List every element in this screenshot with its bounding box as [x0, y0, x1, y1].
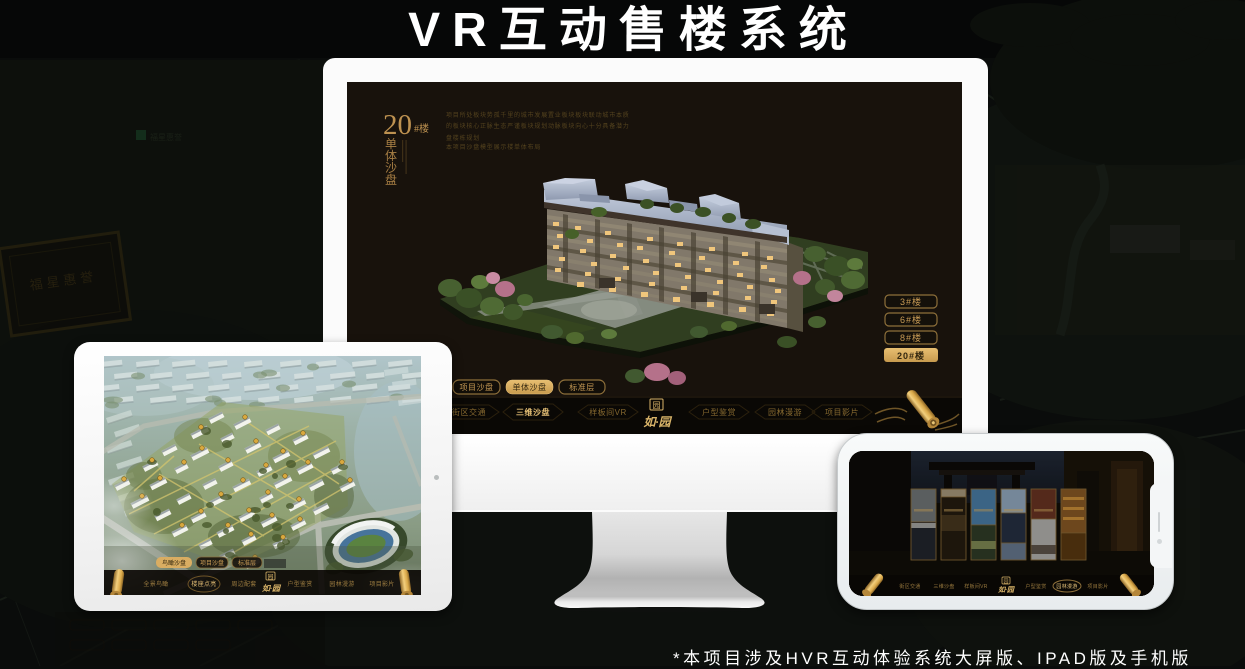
svg-text:三维沙盘: 三维沙盘 — [516, 407, 550, 417]
svg-text:样板间VR: 样板间VR — [589, 407, 627, 417]
svg-text:园林漫游: 园林漫游 — [329, 580, 354, 588]
svg-text:样板间VR: 样板间VR — [964, 583, 988, 590]
svg-text:园林漫游: 园林漫游 — [768, 407, 802, 417]
svg-text:三维沙盘: 三维沙盘 — [933, 583, 954, 590]
svg-text:园: 园 — [653, 401, 661, 410]
svg-text:本项目沙盘模型展示楼单体布局: 本项目沙盘模型展示楼单体布局 — [446, 143, 541, 151]
svg-text:盘楼栋规划: 盘楼栋规划 — [446, 134, 480, 142]
svg-text:福星惠誉: 福星惠誉 — [150, 132, 182, 142]
svg-text:标准层: 标准层 — [569, 382, 595, 392]
svg-text:项目沙盘: 项目沙盘 — [200, 559, 224, 567]
svg-text:的板块核心正脉生态严谨板块规划动脉板块向心十分具备潜力: 的板块核心正脉生态严谨板块规划动脉板块向心十分具备潜力 — [446, 122, 630, 130]
svg-text:园: 园 — [1003, 579, 1008, 585]
svg-text:如·园: 如·园 — [643, 415, 672, 429]
svg-text:楼座点亮: 楼座点亮 — [191, 580, 216, 588]
svg-text:户型鉴赏: 户型鉴赏 — [1025, 583, 1046, 590]
svg-text:项目影片: 项目影片 — [825, 407, 859, 417]
svg-text:3#楼: 3#楼 — [900, 296, 922, 307]
svg-text:项目所处板块势孤千里的城市发展置业板块板块联动城市本质: 项目所处板块势孤千里的城市发展置业板块板块联动城市本质 — [446, 111, 630, 119]
svg-text:街区交通: 街区交通 — [899, 583, 920, 590]
svg-text:8#楼: 8#楼 — [900, 332, 922, 343]
svg-text:鸟瞰沙盘: 鸟瞰沙盘 — [162, 559, 186, 567]
svg-text:周边配套: 周边配套 — [231, 580, 256, 588]
svg-text:6#楼: 6#楼 — [900, 314, 922, 325]
svg-text:项目影片: 项目影片 — [369, 580, 394, 588]
svg-text:如·园: 如·园 — [262, 584, 282, 593]
svg-text:单体沙盘: 单体沙盘 — [513, 382, 547, 392]
svg-text:#楼: #楼 — [414, 122, 429, 135]
svg-text:园: 园 — [267, 574, 273, 581]
svg-text:标准层: 标准层 — [238, 559, 256, 567]
svg-text:项目影片: 项目影片 — [1087, 583, 1108, 590]
svg-text:全景鸟瞰: 全景鸟瞰 — [143, 580, 168, 588]
svg-text:如·园: 如·园 — [998, 585, 1016, 594]
svg-text:20#楼: 20#楼 — [897, 350, 925, 361]
svg-text:园林漫游: 园林漫游 — [1056, 583, 1077, 590]
svg-text:盘: 盘 — [385, 172, 397, 187]
svg-text:项目沙盘: 项目沙盘 — [460, 382, 494, 392]
svg-text:街区交通: 街区交通 — [452, 407, 486, 417]
svg-text:户型鉴赏: 户型鉴赏 — [287, 580, 312, 588]
svg-text:户型鉴赏: 户型鉴赏 — [702, 407, 736, 417]
